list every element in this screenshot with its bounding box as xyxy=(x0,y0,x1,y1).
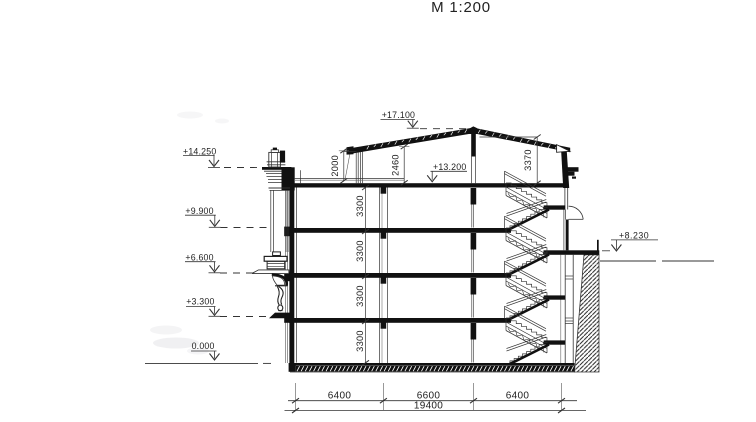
svg-text:+8.230: +8.230 xyxy=(619,231,649,241)
svg-text:2000: 2000 xyxy=(330,155,340,177)
svg-text:6400: 6400 xyxy=(506,391,530,402)
svg-text:+9.900: +9.900 xyxy=(185,206,213,216)
svg-text:3300: 3300 xyxy=(355,195,365,217)
svg-text:3300: 3300 xyxy=(355,285,365,307)
svg-text:+3.300: +3.300 xyxy=(186,297,214,307)
svg-text:+13.200: +13.200 xyxy=(433,162,466,172)
svg-text:6400: 6400 xyxy=(328,391,352,402)
svg-text:M 1:200: M 1:200 xyxy=(431,0,491,16)
svg-text:3300: 3300 xyxy=(355,240,365,262)
svg-text:0.000: 0.000 xyxy=(192,341,215,351)
svg-text:19400: 19400 xyxy=(414,401,443,412)
svg-text:+17.100: +17.100 xyxy=(382,110,415,120)
svg-text:2460: 2460 xyxy=(390,154,400,176)
svg-text:3300: 3300 xyxy=(355,330,365,352)
svg-text:3370: 3370 xyxy=(523,149,533,171)
svg-text:+6.600: +6.600 xyxy=(185,253,213,263)
